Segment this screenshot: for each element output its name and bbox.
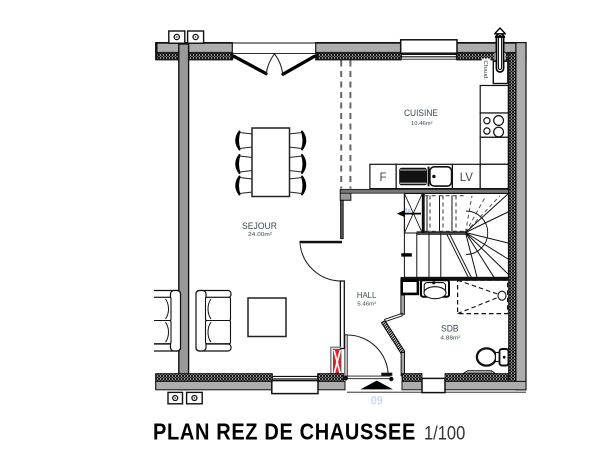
svg-text:8a: 8a bbox=[405, 208, 412, 214]
svg-text:Chaud.: Chaud. bbox=[482, 61, 488, 81]
svg-text:24.00m²: 24.00m² bbox=[248, 232, 272, 238]
svg-text:SDB: SDB bbox=[441, 324, 459, 334]
svg-text:F: F bbox=[379, 172, 386, 184]
svg-text:SEJOUR: SEJOUR bbox=[242, 221, 277, 231]
svg-text:4.88m²: 4.88m² bbox=[440, 336, 460, 342]
svg-text:LV: LV bbox=[460, 172, 474, 184]
svg-text:5.46m²: 5.46m² bbox=[357, 302, 376, 308]
svg-text:PLAN REZ DE CHAUSSEE: PLAN REZ DE CHAUSSEE bbox=[153, 418, 416, 445]
svg-text:HALL: HALL bbox=[357, 290, 377, 300]
svg-text:09: 09 bbox=[371, 396, 383, 408]
svg-text:1/100: 1/100 bbox=[424, 422, 465, 444]
svg-text:10.46m²: 10.46m² bbox=[411, 121, 433, 127]
svg-text:CUISINE: CUISINE bbox=[404, 108, 438, 118]
